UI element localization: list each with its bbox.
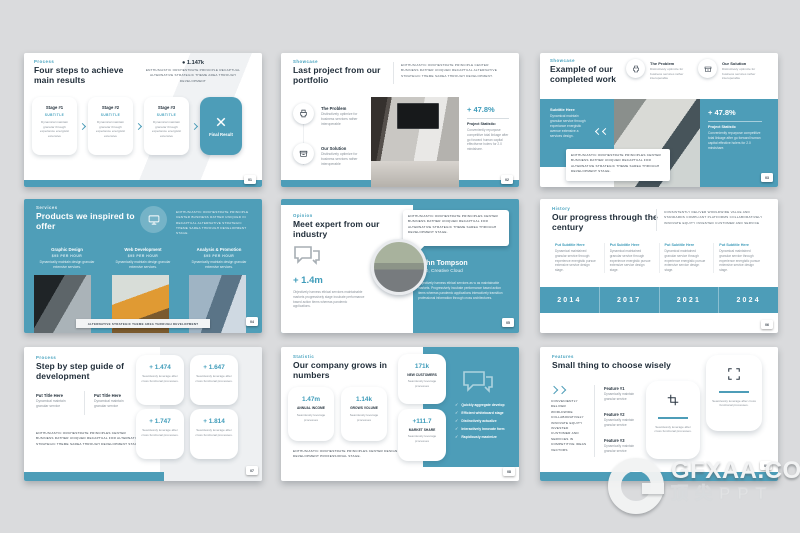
card-body: Seamlessly leverage after cross function… [195,374,233,383]
problem-icon-circle [293,103,314,124]
column-subtitle: Put Subtitle Here [610,243,654,247]
chevron-right-icon [558,386,566,394]
page-number-badge: 03 [761,173,773,182]
slide8-footer: ENTHUSIASTIC ORCHESTRATE PRINCIPLES CENT… [293,449,403,460]
header-divider [393,62,394,84]
slide8-section-label: Statistic [293,354,314,359]
slide1-stat-number: 1.147k [187,60,204,66]
stage-name: Stage #2 [88,105,133,110]
card-value: + 1.747 [136,418,184,425]
final-result-label: Final Result [209,132,233,137]
slide9-left-body: CONVENIENTLY DELIVER WORLDWIDE COLLABORA… [551,399,587,453]
quote-bubble-card: ENTHUSIASTIC ORCHESTRATE PRINCIPLES CENT… [403,210,509,246]
watermark-text: GFXAA.COM 顶尖PPT [671,458,800,505]
stat-divider [467,118,509,119]
services-row: Graphic Design $95 per hour Dynamically … [34,247,252,270]
item-body: Dynamical maintain granular service [36,399,76,409]
item-title: Put Title Here [94,393,121,398]
slide7-section-label: Process [36,355,56,360]
watermark-subtitle: 顶尖PPT [671,483,800,505]
feature-name: Feature #2 [604,412,624,417]
service-rate: $95 per hour [34,254,100,258]
slide-thumbnail-2[interactable]: Showcase Last project from our portfolio… [281,53,519,187]
note-text: ENTHUSIASTIC ORCHESTRATE PRINCIPLES CENT… [571,153,665,175]
card-body: Seamlessly leverage after cross function… [141,374,179,383]
corner-brackets-icon [728,368,740,380]
chevrons-right-icon [551,387,565,393]
slide2-stat-value: + 47.8% [467,105,495,114]
card-body: Seamlessly leverage after cross function… [195,428,233,437]
speech-bubbles-icon [461,369,495,395]
stat-name: NEW CUSTOMERS [398,373,446,377]
checklist-item: ✓Distinctively actualize [455,419,505,423]
gfxaa-logo-icon [608,458,664,514]
chevron-left-icon [602,128,609,135]
check-icon: ✓ [455,435,458,439]
stage-name: Stage #3 [144,105,189,110]
card-value: + 1.474 [136,364,184,371]
stat-card: 1.14k GROWS VOLUME Seamlessly leverage p… [341,387,387,441]
header-divider [656,209,657,231]
monitor-shape [397,103,439,129]
subtitle-title: Subtitle Here [550,107,575,112]
stage-card-3: Stage #3 Subtitle Dynamical maintain gra… [144,97,189,155]
year-cell: 2017 [600,287,660,313]
feature-card-body: Seamlessly leverage after cross function… [712,399,756,408]
solution-icon-circle [293,143,314,164]
ribbon-text: ALTERNATIVE STRATEGIC THEME AREA THROUGH… [88,322,199,326]
number-card: + 1.814 Seamlessly leverage after cross … [190,409,238,459]
slide5-stat-value: + 1.4m [293,275,323,286]
solution-icon-circle [698,59,717,78]
service-name: Analysis & Promotion [186,247,252,252]
solution-body: Distinctively optimize for business serv… [722,67,766,81]
final-result-button[interactable]: Final Result [200,97,242,155]
page-number-badge: 05 [502,318,514,327]
slide3-stat-value: + 47.8% [708,108,736,117]
stage-subtitle: Subtitle [88,113,133,117]
check-text: Quickly aggregate develop [461,403,504,407]
slide2-stat-title: Project Statistic: [467,122,496,126]
service-name: Web Development [110,247,176,252]
slide7-title: Step by step guide of development [36,362,146,381]
column-subtitle: Put Subtitle Here [719,243,763,247]
slide-thumbnail-5[interactable]: Opinion Meet expert from our industry + … [281,199,519,333]
years-band: 2014 2017 2021 2024 [540,287,778,313]
slide-thumbnail-7[interactable]: Process Step by step guide of developmen… [24,347,262,481]
check-icon: ✓ [455,411,458,415]
page-number-badge: 01 [244,175,256,184]
check-text: Distinctively actualize [461,419,496,423]
service-column: Graphic Design $95 per hour Dynamically … [34,247,100,270]
slide1-stage-row: Stage #1 Subtitle Dynamical maintain gra… [32,97,242,155]
slide-thumbnail-3[interactable]: Showcase Example of our completed work T… [540,53,778,187]
service-body: Dynamically maintain design granular ext… [186,260,252,270]
slide6-title: Our progress through the century [552,213,664,232]
solution-title: Our Solution [722,61,746,66]
stat-divider [708,121,762,122]
stat-card: +111.7 MARKET SHARE Seamlessly leverage … [398,409,446,461]
subtitle-body: Dynamical maintain granular service thro… [550,114,590,140]
slide2-desc: ENTHUSIASTIC ORCHESTRATE PRINCIPLE CENTE… [401,63,507,79]
stat-body: Seamlessly leverage processes [345,413,383,422]
slide2-title: Last project from our portfolio [293,66,397,85]
arrow-right-icon [79,122,86,129]
checklist-item: ✓Quickly aggregate develop [455,403,505,407]
column-subtitle: Put Subtitle Here [555,243,599,247]
expert-portrait-photo [371,239,427,295]
printer-icon [299,109,308,118]
slide9-title: Small thing to choose wisely [552,361,672,371]
chevrons-left-icon [596,129,608,134]
slide7-bottom-bar [24,472,164,481]
template-preview-board: Process Four steps to achieve main resul… [0,0,800,533]
check-text: Efficient whiteboard stage [461,411,503,415]
problem-title: The Problem [650,61,674,66]
slide-thumbnail-1[interactable]: Process Four steps to achieve main resul… [24,53,262,187]
monitor-icon [148,214,160,226]
slide5-title: Meet expert from our industry [293,220,393,239]
checklist-item: ✓Rapidiously maximize [455,435,505,439]
slide3-section-label: Showcase [550,58,575,63]
arrow-right-icon [191,122,198,129]
feature-card: Seamlessly leverage after cross function… [646,381,700,459]
check-text: Interactively innovate form [461,427,504,431]
stage-subtitle: Subtitle [32,113,77,117]
slide3-note-card: ENTHUSIASTIC ORCHESTRATE PRINCIPLES CENT… [566,149,670,181]
feature-name: Feature #1 [604,386,624,391]
stat-body: Seamlessly leverage processes [403,379,441,388]
service-column: Web Development $95 per hour Dynamically… [110,247,176,270]
year-cell: 2024 [719,287,778,313]
slide1-bottom-bar [24,180,262,187]
slide5-right-body: Objectively harness ethical services as … [418,281,508,301]
stat-card: 1.47m ANNUAL INCOME Seamlessly leverage … [288,387,334,441]
slide6-desc: CONSISTENTLY DELIVER WORLDWIDE VALUE AND… [664,210,768,226]
desk-shape [371,161,459,187]
slide3-stat-title: Project Statistic [708,125,736,129]
column-body: Dynamical maintained granular service th… [665,249,709,273]
history-column: Put Subtitle Here Dynamical maintained g… [659,243,714,273]
slide7-paragraph: ENTHUSIASTIC ORCHESTRATE PRINCIPLES CENT… [36,431,142,447]
feature-card-body: Seamlessly leverage after cross function… [652,425,694,434]
item-body: Dynamical maintain granular service [94,399,134,409]
slide5-left-body: Objectively harness ethical services mai… [293,290,365,309]
page-number-badge: 06 [761,320,773,329]
slide9-section-label: Features [552,354,574,359]
features-divider [594,385,595,457]
history-column: Put Subtitle Here Dynamical maintained g… [550,243,604,273]
solution-title: Our Solution [321,146,346,151]
check-icon: ✓ [455,419,458,423]
column-subtitle: Put Subtitle Here [665,243,709,247]
service-body: Dynamically maintain design granular ext… [110,260,176,270]
history-column: Put Subtitle Here Dynamical maintained g… [604,243,659,273]
printer-icon [632,65,640,73]
stat-name: GROWS VOLUME [341,406,387,410]
service-column: Analysis & Promotion $95 per hour Dynami… [186,247,252,270]
slide8-title: Our company grows in numbers [293,361,413,380]
slide6-section-label: History [552,206,570,211]
teal-underline [719,391,749,393]
teal-underline [658,417,688,419]
slide2-stat-body: Conveniently repurpose competitive total… [467,128,509,152]
slide1-title: Four steps to achieve main results [34,66,146,85]
slide3-stat-body: Conveniently repurpose competitive total… [708,131,764,151]
stat-value: 171k [398,363,446,370]
logo-notch [642,483,664,494]
slide-thumbnail-4[interactable]: Services Products we inspired to offer E… [24,199,262,333]
checklist-item: ✓Interactively innovate form [455,427,505,431]
feature-card: Seamlessly leverage after cross function… [706,355,762,431]
quote-text: ENTHUSIASTIC ORCHESTRATE PRINCIPLES CENT… [408,214,504,236]
column-body: Dynamical maintained granular service th… [555,249,599,273]
number-card: + 1.474 Seamlessly leverage after cross … [136,355,184,405]
feature-body: Dynamically maintain granular service [604,392,646,402]
slide4-section-label: Services [36,205,58,210]
check-text: Rapidiously maximize [461,435,496,439]
problem-title: The Problem [321,106,346,111]
service-rate: $95 per hour [110,254,176,258]
monitor-icon-circle [140,206,167,233]
number-card: + 1.747 Seamlessly leverage after cross … [136,409,184,459]
problem-icon-circle [626,59,645,78]
slide1-stat-desc: ENTHUSIASTIC ORCHESTRATE PRINCIPLE RECAP… [140,68,246,84]
stat-value: 1.47m [288,396,334,403]
column-body: Dynamical maintained granular service th… [610,249,654,273]
x-pattern-icon [215,116,227,128]
arrow-right-icon [135,122,142,129]
checklist-item: ✓Efficient whiteboard stage [455,411,505,415]
speech-bubbles-icon [293,245,321,267]
card-body: Seamlessly leverage after cross function… [141,428,179,437]
column-body: Dynamical maintained granular service th… [719,249,763,273]
year-cell: 2021 [660,287,720,313]
box-icon [704,65,712,73]
stat-name: ANNUAL INCOME [288,406,334,410]
stat-value: +111.7 [398,418,446,425]
service-name: Graphic Design [34,247,100,252]
stage-name: Stage #1 [32,105,77,110]
items-divider [84,391,85,415]
card-value: + 1.647 [190,364,238,371]
slide5-section-label: Opinion [293,213,313,218]
project-photo [371,97,459,187]
slide1-stat-value: ● 1.147k [140,60,246,66]
page-number-badge: 02 [501,175,513,184]
watermark-brand: GFXAA.COM [671,458,800,483]
slide4-ribbon: ALTERNATIVE STRATEGIC THEME AREA THROUGH… [76,319,210,328]
stat-body: Seamlessly leverage processes [292,413,330,422]
watermark: GFXAA.COM 顶尖PPT [608,458,800,514]
slide1-stat-block: ● 1.147k ENTHUSIASTIC ORCHESTRATE PRINCI… [140,60,246,84]
check-icon: ✓ [455,427,458,431]
feature-body: Dynamically maintain granular service [604,418,646,428]
slide3-title: Example of our completed work [550,65,636,84]
page-number-badge: 04 [246,317,258,326]
stat-value: 1.14k [341,396,387,403]
box-icon [299,149,308,158]
feature-body: Dynamically maintain granular service [604,444,646,454]
solution-body: Distinctively optimize for business serv… [321,152,369,167]
history-column: Put Subtitle Here Dynamical maintained g… [713,243,768,273]
stage-card-1: Stage #1 Subtitle Dynamical maintain gra… [32,97,77,155]
stage-subtitle: Subtitle [144,113,189,117]
problem-body: Distinctively optimize for business serv… [321,112,369,127]
stage-body: Dynamical maintain granular through expe… [149,120,184,139]
year-cell: 2014 [540,287,600,313]
history-columns: Put Subtitle Here Dynamical maintained g… [550,243,768,273]
stage-body: Dynamical maintain granular through expe… [37,120,72,139]
slide-thumbnail-8[interactable]: Statistic Our company grows in numbers 1… [281,347,519,481]
check-icon: ✓ [455,403,458,407]
problem-body: Distinctively optimize for business serv… [650,67,690,81]
stat-body: Seamlessly leverage processes [403,434,441,443]
number-card: + 1.647 Seamlessly leverage after cross … [190,355,238,405]
stage-card-2: Stage #2 Subtitle Dynamical maintain gra… [88,97,133,155]
checklist: ✓Quickly aggregate develop ✓Efficient wh… [455,403,505,443]
bullet-icon: ● [182,60,185,66]
stage-body: Dynamical maintain granular through expe… [93,120,128,139]
slide1-section-label: Process [34,59,54,64]
stat-name: MARKET SHARE [398,428,446,432]
slide2-section-label: Showcase [293,59,318,64]
slide4-desc: ENTHUSIASTIC ORCHESTRATE PRINCIPLE CENTE… [176,210,254,236]
slide4-title: Products we inspired to offer [36,212,136,231]
card-value: + 1.814 [190,418,238,425]
service-rate: $95 per hour [186,254,252,258]
crop-icon [667,394,679,406]
slide-thumbnail-6[interactable]: History Our progress through the century… [540,199,778,333]
stat-card: 171k NEW CUSTOMERS Seamlessly leverage p… [398,354,446,404]
page-number-badge: 07 [246,466,258,475]
service-body: Dynamically maintain design granular ext… [34,260,100,270]
feature-name: Feature #3 [604,438,624,443]
page-number-badge: 08 [503,467,515,476]
item-title: Put Title Here [36,393,63,398]
